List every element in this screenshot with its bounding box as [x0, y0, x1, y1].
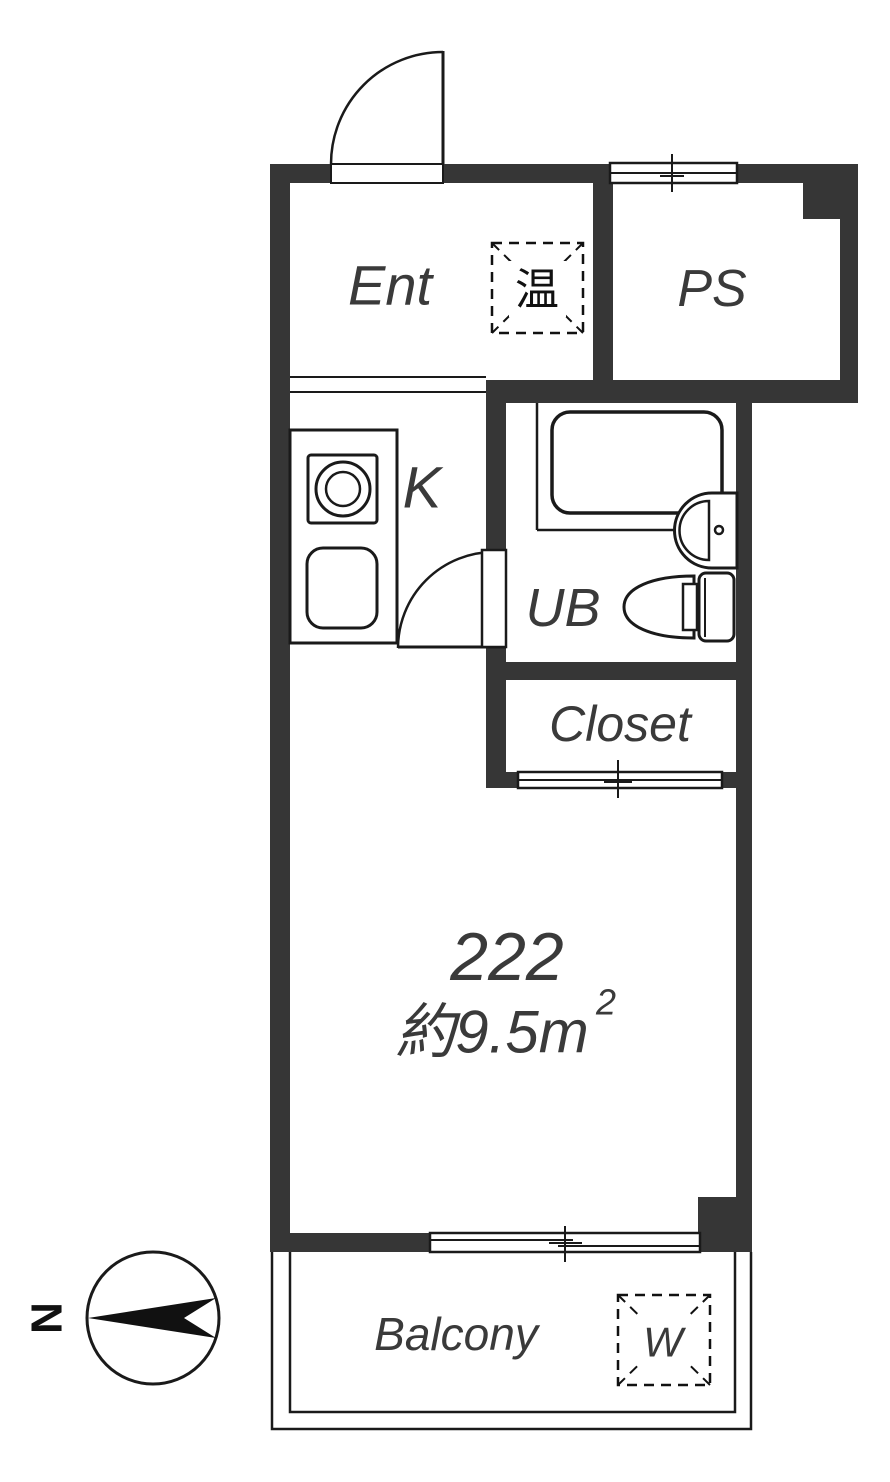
washing-machine-box: W	[618, 1295, 710, 1385]
kitchen-door	[398, 550, 506, 648]
unit-bath-label: UB	[525, 578, 600, 638]
water-heater-box: 温	[492, 243, 583, 333]
stove	[308, 455, 377, 523]
kitchen-door-leaf	[482, 550, 506, 647]
floor-plan-drawing: 温	[0, 0, 890, 1482]
entrance-label: Ent	[348, 254, 434, 317]
kitchen-door-arc	[398, 552, 494, 648]
wall-ub-closet-divider	[486, 662, 752, 680]
wall-bottom-left	[290, 1233, 430, 1252]
washbasin	[675, 493, 737, 568]
entrance-step	[290, 377, 486, 392]
entrance-door-opening	[331, 164, 443, 183]
wall-ub-left-upper	[486, 403, 506, 553]
ps-window	[610, 154, 737, 192]
wall-ent-ps-divider	[593, 183, 613, 380]
washbasin-faucet-dot	[715, 526, 723, 534]
closet-label: Closet	[549, 696, 693, 752]
floor-plan-page: 温	[0, 0, 890, 1482]
balcony-window	[430, 1226, 700, 1262]
pipe-space-label: PS	[677, 260, 747, 318]
wall-left-outer	[270, 183, 290, 1252]
wall-closet-stub-left	[486, 772, 518, 788]
wall-closet-stub-right	[722, 772, 752, 788]
wall-top-mid	[443, 164, 610, 183]
wall-ps-pillar	[803, 183, 858, 219]
main-room-unit-number: 222	[449, 919, 563, 995]
closet-sliding-door	[518, 760, 722, 798]
kitchen-fixtures	[290, 430, 397, 643]
wall-top-left	[270, 164, 331, 183]
main-room-area-label: 約9.5m	[395, 999, 588, 1066]
entrance-door	[331, 51, 443, 183]
water-heater-label: 温	[515, 266, 559, 315]
wall-top-right	[737, 164, 858, 183]
compass: N	[22, 1252, 220, 1384]
compass-north-label: N	[22, 1302, 71, 1334]
toilet-seat-hinge	[683, 584, 697, 630]
kitchen-sink	[307, 548, 377, 628]
washing-machine-label: W	[643, 1319, 686, 1366]
entrance-door-arc	[331, 52, 443, 164]
wall-under-entrance	[486, 380, 858, 403]
main-room-area-superscript: 2	[595, 982, 616, 1023]
wall-bottom-right-pillar	[698, 1197, 752, 1252]
balcony-label: Balcony	[374, 1308, 541, 1360]
kitchen-label: K	[403, 456, 444, 521]
